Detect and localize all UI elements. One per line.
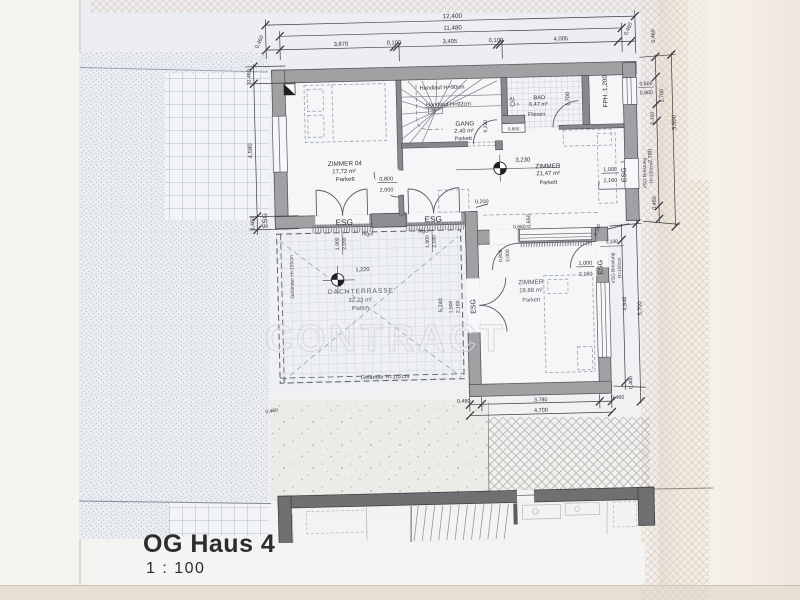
svg-text:ZIMMER 04: ZIMMER 04 — [328, 160, 363, 168]
svg-text:m: m — [516, 102, 519, 106]
svg-text:0,660: 0,660 — [513, 224, 526, 230]
svg-text:BAD: BAD — [533, 95, 545, 101]
svg-text:ESG: ESG — [336, 218, 354, 227]
svg-text:1,900: 1,900 — [425, 235, 431, 248]
svg-text:1,900: 1,900 — [335, 237, 341, 250]
svg-text:19,88 m²: 19,88 m² — [519, 288, 543, 295]
svg-text:2,780: 2,780 — [648, 149, 654, 163]
svg-text:Geländer H=102cm: Geländer H=102cm — [361, 374, 410, 381]
svg-text:4,700: 4,700 — [534, 408, 548, 414]
svg-text:VSG Brüstung: VSG Brüstung — [610, 252, 617, 283]
svg-text:CONTRACT: CONTRACT — [265, 318, 506, 360]
svg-text:3,230: 3,230 — [515, 157, 531, 163]
svg-text:H=100cm: H=100cm — [648, 163, 655, 184]
svg-text:0,460: 0,460 — [457, 399, 471, 405]
svg-text:FPH.:1,200: FPH.:1,200 — [602, 74, 610, 107]
svg-text:1,100: 1,100 — [606, 239, 619, 245]
svg-text:Handlauf H=92cm: Handlauf H=92cm — [426, 101, 471, 108]
svg-text:0,460: 0,460 — [247, 69, 253, 83]
svg-text:Parkett: Parkett — [522, 297, 540, 303]
svg-text:5,500: 5,500 — [672, 114, 678, 130]
svg-text:ESG: ESG — [597, 260, 604, 275]
svg-text:4,005: 4,005 — [554, 36, 569, 42]
svg-text:1,220: 1,220 — [355, 267, 369, 273]
svg-text:Fliesen: Fliesen — [528, 112, 546, 118]
svg-text:0,600: 0,600 — [639, 81, 652, 87]
svg-text:0,800: 0,800 — [640, 90, 653, 96]
svg-text:0,650: 0,650 — [526, 214, 532, 228]
svg-text:6,47 m²: 6,47 m² — [529, 102, 548, 108]
svg-text:17,72 m²: 17,72 m² — [332, 169, 356, 176]
svg-text:0,800: 0,800 — [379, 176, 393, 182]
svg-text:2,160: 2,160 — [455, 300, 461, 313]
svg-text:1,700: 1,700 — [565, 92, 571, 106]
svg-text:3,405: 3,405 — [443, 39, 458, 45]
svg-text:ESG: ESG — [262, 213, 269, 228]
svg-text:0,100: 0,100 — [489, 38, 504, 44]
svg-text:3,780: 3,780 — [534, 397, 548, 403]
svg-text:0,100: 0,100 — [387, 40, 402, 46]
svg-text:0,460: 0,460 — [255, 35, 266, 50]
svg-text:32,23 m²: 32,23 m² — [348, 297, 372, 304]
svg-text:ESG: ESG — [470, 299, 477, 314]
svg-text:ZIMMER: ZIMMER — [518, 279, 544, 287]
svg-text:ESG: ESG — [621, 167, 628, 182]
svg-text:4,948: 4,948 — [622, 297, 628, 311]
svg-text:0,220: 0,220 — [483, 120, 489, 133]
svg-text:3,870: 3,870 — [334, 42, 349, 48]
svg-text:21,47 m²: 21,47 m² — [536, 171, 560, 178]
svg-text:12,400: 12,400 — [442, 13, 462, 20]
svg-text:2,160: 2,160 — [603, 178, 617, 184]
svg-text:ESG: ESG — [424, 215, 442, 224]
svg-text:2,000: 2,000 — [380, 187, 394, 193]
svg-text:0,100: 0,100 — [650, 111, 656, 124]
svg-text:Rigol: Rigol — [417, 229, 429, 235]
svg-text:Platten: Platten — [352, 305, 370, 311]
svg-text:ZIMMER: ZIMMER — [535, 163, 561, 171]
svg-text:5,240: 5,240 — [438, 298, 444, 312]
svg-text:Rigol: Rigol — [362, 231, 374, 237]
svg-text:1,000: 1,000 — [578, 261, 592, 267]
svg-text:0,460: 0,460 — [628, 376, 634, 389]
svg-text:2,000: 2,000 — [505, 249, 511, 262]
svg-text:2,40 m²: 2,40 m² — [454, 128, 474, 134]
svg-text:0,800: 0,800 — [498, 249, 504, 262]
svg-text:Parkett: Parkett — [539, 180, 557, 186]
svg-text:Parkett: Parkett — [455, 136, 473, 142]
svg-text:Handlauf H=90cm: Handlauf H=90cm — [420, 85, 465, 92]
svg-text:0,460: 0,460 — [611, 395, 625, 401]
svg-text:1,000: 1,000 — [603, 167, 617, 173]
svg-text:Parkett: Parkett — [336, 177, 355, 183]
svg-text:11,480: 11,480 — [443, 24, 462, 31]
svg-text:1,500: 1,500 — [448, 300, 454, 313]
svg-text:0,460: 0,460 — [652, 196, 658, 210]
svg-text:1,700: 1,700 — [659, 89, 665, 103]
svg-text:GANG: GANG — [455, 120, 474, 127]
svg-text:0,660: 0,660 — [508, 126, 520, 131]
svg-text:4,580: 4,580 — [248, 143, 254, 159]
svg-text:Geländer H=102cm: Geländer H=102cm — [289, 255, 296, 299]
svg-text:0,460: 0,460 — [651, 29, 657, 43]
svg-text:5,700: 5,700 — [637, 301, 643, 315]
svg-text:0,460: 0,460 — [250, 217, 256, 231]
